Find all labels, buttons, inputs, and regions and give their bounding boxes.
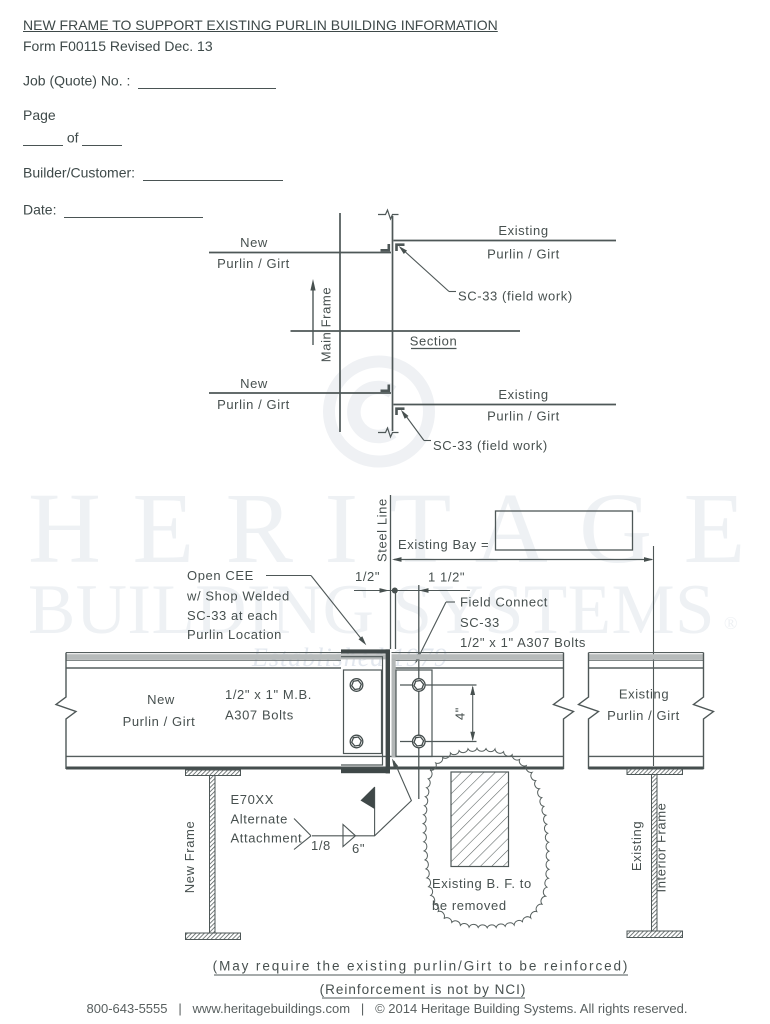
svg-text:6": 6" — [352, 841, 365, 856]
svg-text:Main Frame: Main Frame — [319, 287, 334, 362]
svg-text:1 1/2": 1 1/2" — [428, 570, 465, 585]
svg-text:Purlin / Girt: Purlin / Girt — [217, 256, 290, 271]
svg-text:Purlin / Girt: Purlin / Girt — [487, 247, 560, 262]
svg-text:SC-33 (field work): SC-33 (field work) — [458, 289, 573, 304]
svg-text:(Reinforcement is not by NCI): (Reinforcement is not by NCI) — [320, 982, 527, 997]
svg-text:New: New — [240, 376, 268, 391]
svg-text:Purlin / Girt: Purlin / Girt — [217, 397, 290, 412]
svg-text:w/ Shop Welded: w/ Shop Welded — [186, 589, 290, 604]
svg-text:New: New — [147, 692, 175, 707]
svg-text:1/2" x 1" A307 Bolts: 1/2" x 1" A307 Bolts — [460, 635, 586, 650]
svg-text:Open CEE: Open CEE — [187, 568, 254, 583]
svg-text:SC-33 (field work): SC-33 (field work) — [433, 438, 548, 453]
svg-text:Attachment: Attachment — [231, 831, 303, 846]
svg-text:be removed: be removed — [432, 898, 507, 913]
svg-text:(May require the existing purl: (May require the existing purlin/Girt to… — [213, 959, 630, 974]
svg-text:Existing: Existing — [629, 821, 644, 871]
svg-text:New: New — [240, 235, 268, 250]
svg-text:SC-33: SC-33 — [460, 615, 500, 630]
svg-text:1/2" x 1" M.B.: 1/2" x 1" M.B. — [225, 687, 312, 702]
svg-text:Purlin / Girt: Purlin / Girt — [123, 714, 196, 729]
svg-text:Existing: Existing — [498, 223, 548, 238]
svg-text:New Frame: New Frame — [182, 821, 197, 894]
svg-text:SC-33 at each: SC-33 at each — [187, 608, 278, 623]
svg-text:Purlin / Girt: Purlin / Girt — [487, 409, 560, 424]
svg-text:1/2": 1/2" — [355, 569, 380, 584]
svg-text:Existing: Existing — [498, 387, 548, 402]
svg-text:Purlin / Girt: Purlin / Girt — [607, 708, 680, 723]
svg-text:Existing B. F. to: Existing B. F. to — [432, 876, 532, 891]
svg-text:1/8: 1/8 — [311, 838, 331, 853]
svg-text:Purlin Location: Purlin Location — [187, 627, 282, 642]
svg-text:4": 4" — [453, 707, 468, 720]
svg-text:Existing Bay =: Existing Bay = — [398, 537, 489, 552]
svg-text:Field Connect: Field Connect — [460, 595, 548, 610]
svg-text:Existing: Existing — [619, 687, 669, 702]
svg-text:Alternate: Alternate — [231, 812, 288, 827]
svg-text:Steel Line: Steel Line — [375, 498, 390, 562]
svg-text:E70XX: E70XX — [231, 792, 274, 807]
svg-text:Section: Section — [410, 334, 458, 349]
svg-text:A307 Bolts: A307 Bolts — [225, 708, 294, 723]
svg-text:Interior Frame: Interior Frame — [654, 802, 669, 892]
